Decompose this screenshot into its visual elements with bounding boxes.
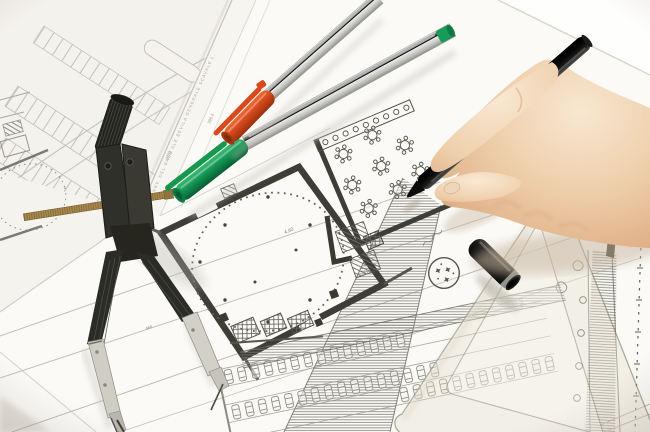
photo-canvas: 4,60 460 510 1754 DI CONSV. DEL BASO ALE…	[0, 0, 650, 432]
vignette	[0, 0, 650, 432]
photo-stage: 4,60 460 510 1754 DI CONSV. DEL BASO ALE…	[0, 0, 650, 432]
